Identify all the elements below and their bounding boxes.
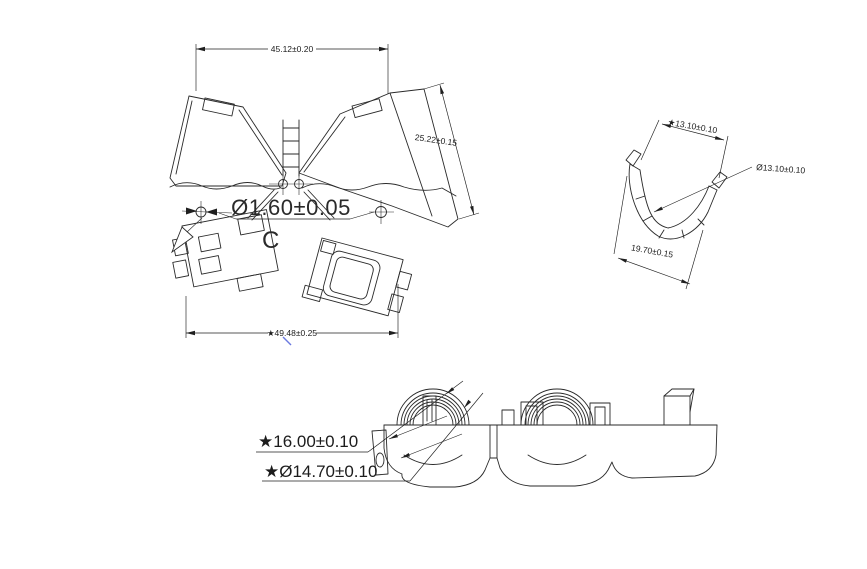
dim-label-19-70: 19.70±0.15 [630,242,674,259]
blue-annotation-mark [283,337,291,345]
cad-drawing-canvas: 45.12±0.20 25.22±0.15 Ø1.60±0.05 C [0,0,867,569]
dim-arrow-icon [470,206,474,215]
top-tabs [423,389,694,425]
c-profile-body [626,150,727,239]
leader-arrow-icon [464,400,471,408]
closed-clamp-body [372,389,717,487]
drawing-sheet: 45.12±0.20 25.22±0.15 Ø1.60±0.05 C [0,0,867,569]
dim-arrow-icon [618,258,627,263]
dim-arrow-icon [440,85,444,94]
dim-arrow-icon [379,47,388,51]
dim-label-13-10-dia: Ø13.10±0.10 [756,162,806,175]
left-latch-body [166,210,280,303]
dim-label-25-22: 25.22±0.15 [414,132,458,148]
side-section-view: ★16.00±0.10 ★Ø14.70±0.10 [256,381,717,487]
leader-arrow-icon [401,453,410,458]
c-section-view: ★13.10±0.10 Ø13.10±0.10 19.70±0.15 [614,117,806,289]
left-cradle-grooves [397,389,469,425]
open-state-view: 45.12±0.20 25.22±0.15 Ø1.60±0.05 C [166,44,479,345]
left-half-body [170,96,286,186]
hinge-strap [283,120,299,176]
break-lines [170,183,456,197]
dim-label-13-10: ★13.10±0.10 [667,117,718,136]
dim-label-49-48: ★49.48±0.25 [267,328,317,338]
dimension-13-10: ★13.10±0.10 [641,117,728,178]
dim-label-16-00: ★16.00±0.10 [258,432,358,451]
section-label-c: C [262,227,279,254]
dim-label-45-12: 45.12±0.20 [271,44,314,54]
section-arrow-icon [186,208,197,215]
section-arrow-icon [206,209,217,216]
pin-diameter-callout: Ø1.60±0.05 C [219,195,374,254]
dimension-49-48: ★49.48±0.25 [186,284,398,345]
dim-arrow-icon [186,331,195,335]
right-cradle-grooves [521,389,593,425]
dim-arrow-icon [715,136,724,140]
dim-arrow-icon [389,331,398,335]
dimension-45-12: 45.12±0.20 [196,44,388,94]
dimension-25-22: 25.22±0.15 [414,83,479,219]
body-outline [372,425,717,487]
dim-arrow-icon [196,47,205,51]
section-cut-marker [172,201,232,252]
dim-label-pin-dia: Ø1.60±0.05 [231,195,351,220]
leader-arrow-icon [654,207,663,212]
leader-13-10-dia: Ø13.10±0.10 [654,162,806,212]
right-pivot-hole [369,200,394,224]
leader-arrow-icon [389,434,398,439]
dim-label-14-70: ★Ø14.70±0.10 [264,462,377,481]
